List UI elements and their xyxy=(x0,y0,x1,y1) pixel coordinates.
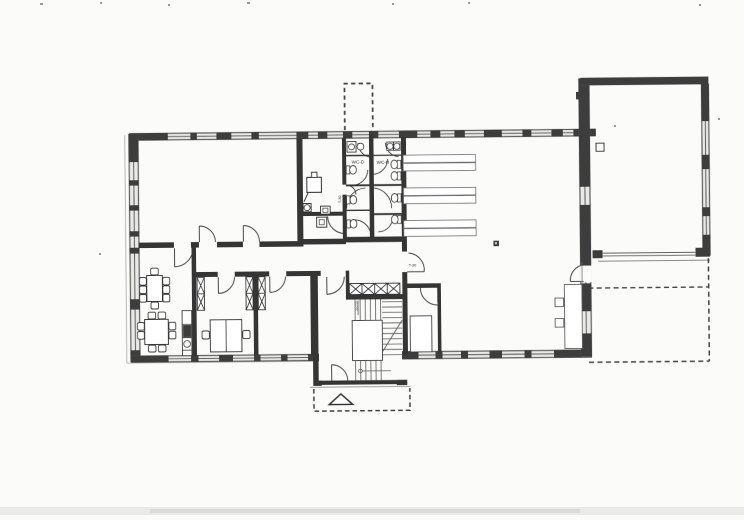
svg-text:T-30: T-30 xyxy=(409,263,417,267)
svg-text:16x17/28: 16x17/28 xyxy=(355,301,358,312)
svg-text:WC-H: WC-H xyxy=(377,160,390,165)
svg-text:WC-D: WC-D xyxy=(352,159,365,164)
svg-text:T-30: T-30 xyxy=(338,196,342,204)
